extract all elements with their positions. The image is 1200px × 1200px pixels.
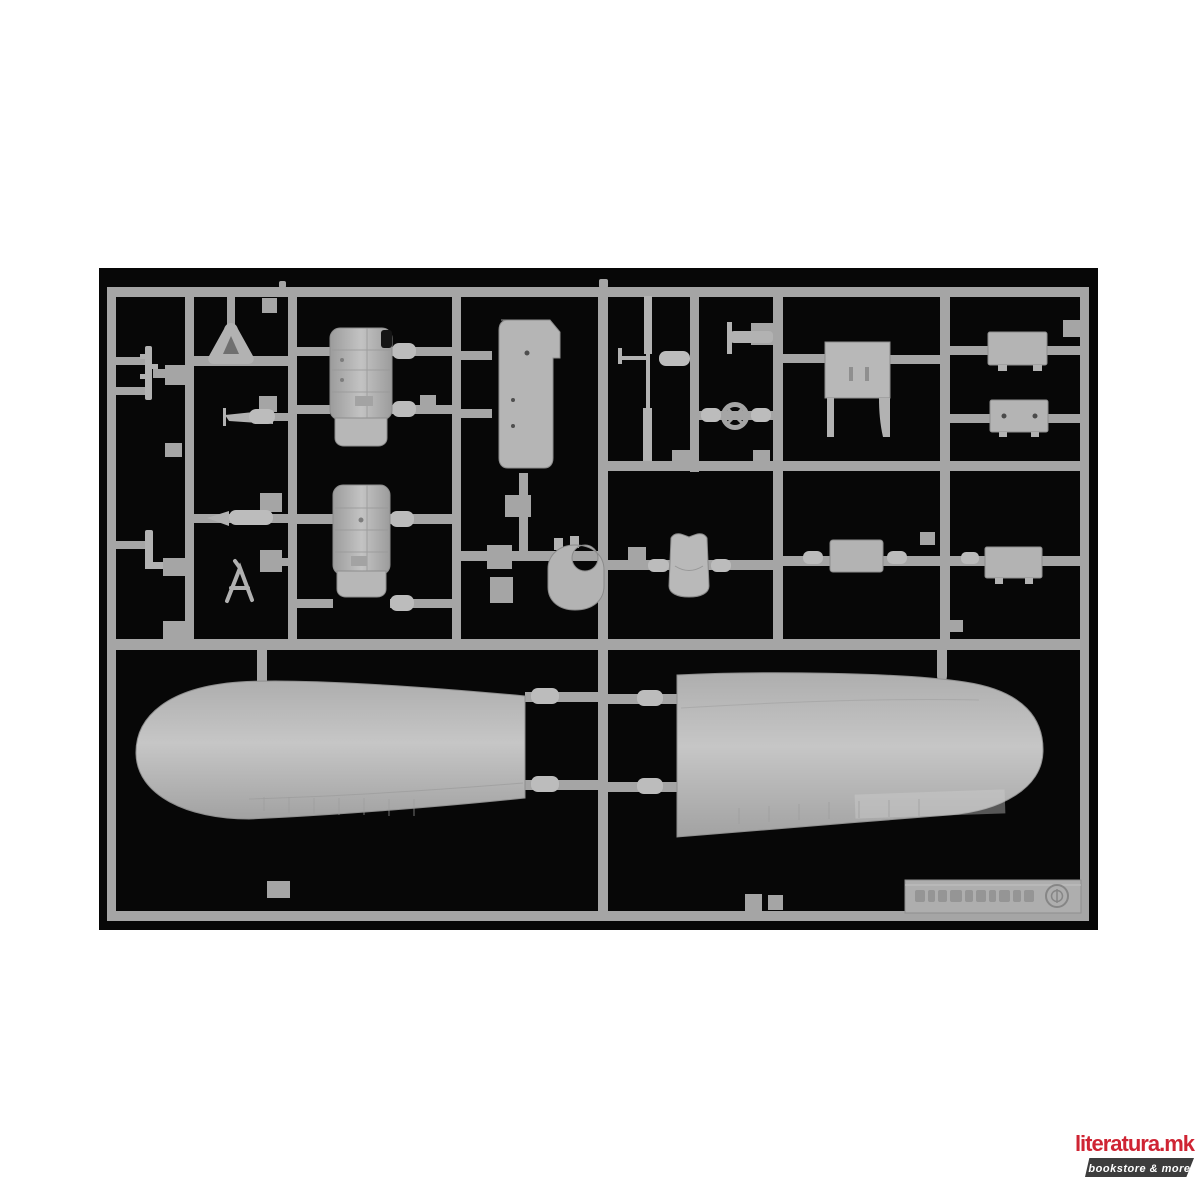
part-equipment-box-1	[950, 332, 1080, 371]
part-small-bracket	[116, 346, 185, 400]
part-engine-cowling-2	[297, 485, 452, 611]
part-control-wheel	[701, 405, 771, 428]
part-wing-right	[608, 650, 1043, 837]
site-logo-title: literatura.mk	[1058, 1132, 1194, 1156]
part-a-frame-strut	[227, 558, 289, 601]
part-pointed-link	[207, 510, 273, 526]
site-logo-tagline: bookstore & more	[1088, 1163, 1190, 1175]
sprue-marking-tab	[905, 880, 1081, 913]
part-wing-left	[136, 650, 598, 819]
site-logo-banner: bookstore & more	[1085, 1158, 1194, 1177]
page: { "page": { "background": "#ffffff" }, "…	[0, 0, 1200, 1200]
part-mount-ring	[548, 536, 604, 610]
part-triangle-bracket	[208, 296, 254, 364]
part-radiator-1	[803, 540, 907, 572]
part-control-column	[618, 296, 690, 461]
part-engine-cowling-1	[297, 328, 452, 446]
product-photo	[99, 268, 1098, 930]
sprue-illustration	[99, 268, 1098, 930]
part-equipment-box-2	[950, 400, 1080, 437]
part-bulkhead	[783, 342, 940, 437]
part-l-bracket	[116, 530, 163, 569]
part-gun-barrel	[223, 408, 288, 426]
part-pilot-seat	[648, 534, 731, 597]
site-logo: literatura.mk bookstore & more	[1058, 1132, 1194, 1177]
